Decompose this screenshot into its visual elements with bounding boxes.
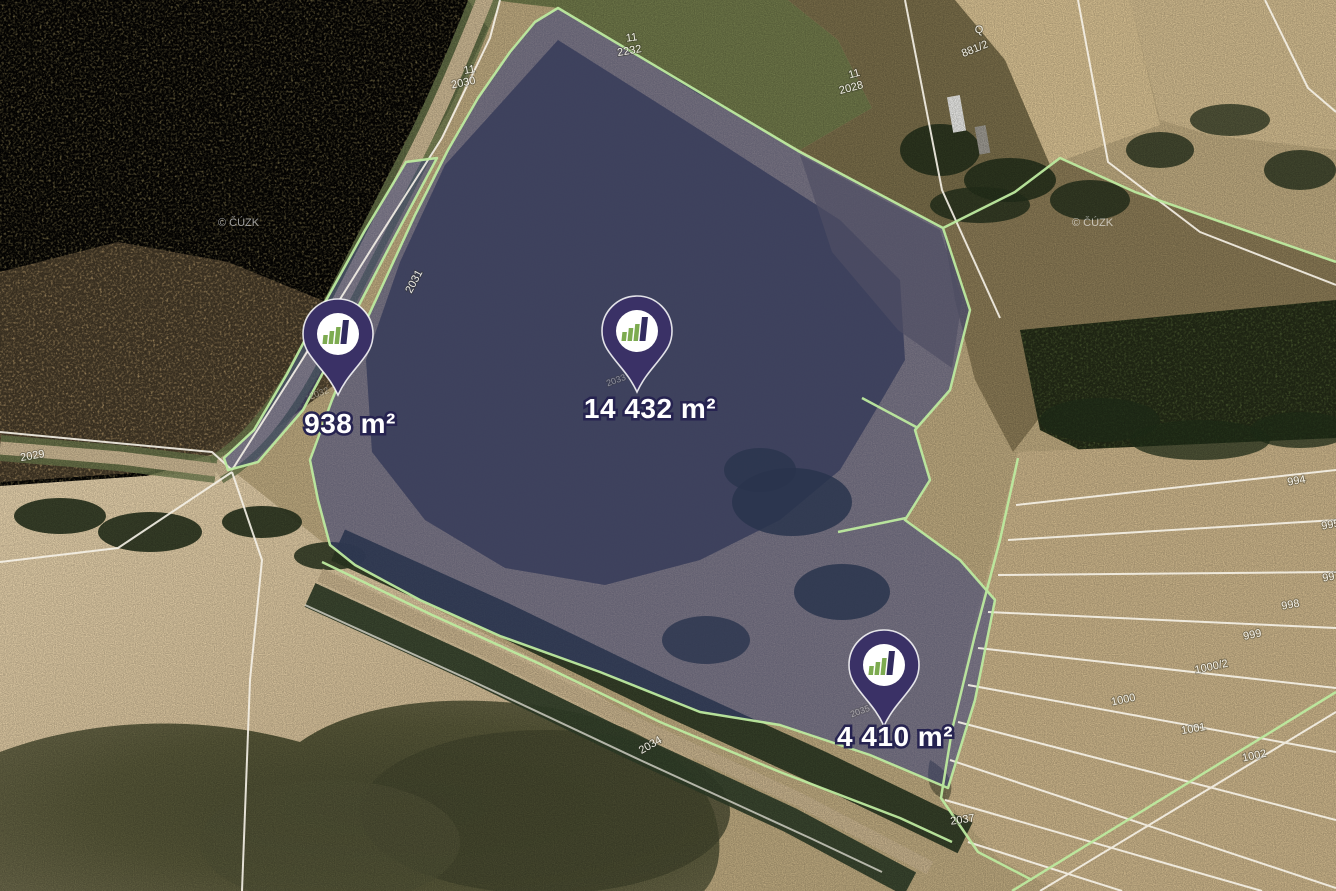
map-attribution: © ČÚZK (1072, 216, 1114, 229)
pin-area-label: 14 432 m² (584, 393, 716, 424)
map-attribution: © ČÚZK (218, 216, 260, 229)
pin-area-label: 4 410 m² (837, 721, 953, 752)
parcel-number: 997 (1321, 570, 1336, 585)
map-viewport[interactable]: 112030112232112028Q881/22031202920322033… (0, 0, 1336, 891)
parcel-number: 995 (1320, 518, 1336, 533)
satellite-map[interactable]: 112030112232112028Q881/22031202920322033… (0, 0, 1336, 891)
parcel-number: Q (975, 24, 984, 36)
parcel-number: 11 (625, 31, 638, 44)
pin-area-label: 938 m² (304, 408, 396, 439)
